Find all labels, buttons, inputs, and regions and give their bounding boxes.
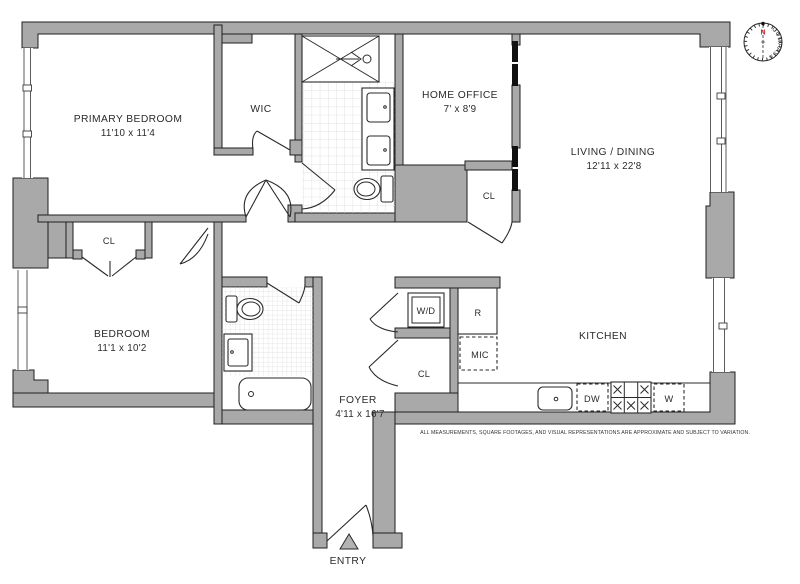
window-bedroom [16,270,29,370]
window-primary-bedroom [22,48,33,178]
floor-plan-page: N COMPASS PRIMARY BEDROOM 11'10 x 11'4 W… [0,0,800,584]
bedroom-dims: 11'1 x 10'2 [97,343,146,354]
living-closet-label: CL [483,191,495,201]
dishwasher-label: DW [584,394,600,404]
living-dining-dims: 12'11 x 22'8 [586,161,641,172]
home-office-label: HOME OFFICE [422,90,498,101]
window-kitchen [712,278,730,372]
kitchen-sink-icon [538,387,572,410]
microwave-label: MIC [471,350,489,360]
refrigerator-label: R [475,308,482,318]
primary-closet-label: CL [103,236,115,246]
kitchen-counter [458,370,710,383]
shower-icon [302,36,379,82]
vanity-double-sink-icon [362,88,394,170]
floor-plan: N COMPASS PRIMARY BEDROOM 11'10 x 11'4 W… [0,0,800,584]
primary-bedroom-label: PRIMARY BEDROOM [74,114,183,125]
toilet-icon [354,176,393,202]
washer-dryer-label: W/D [417,306,436,316]
compass-icon: N COMPASS [744,22,782,61]
primary-bedroom-dims: 11'10 x 11'4 [101,128,156,139]
compass-north-label: N [760,30,765,37]
washer-label: W [665,394,674,404]
foyer-closet-label: CL [418,369,430,379]
home-office-dims: 7' x 8'9 [444,104,477,115]
bedroom-label: BEDROOM [94,329,150,340]
bathtub-icon [239,378,311,410]
entry-label: ENTRY [330,556,367,567]
disclaimer-text: ALL MEASUREMENTS, SQUARE FOOTAGES, AND V… [420,430,750,436]
entry-arrow-icon [340,534,358,549]
stove-icon [611,382,651,413]
wic-label: WIC [250,104,271,115]
toilet2-icon [226,296,263,322]
kitchen-label: KITCHEN [579,331,627,342]
sink2-icon [224,334,252,371]
foyer-label: FOYER [339,395,376,406]
living-dining-label: LIVING / DINING [571,147,655,158]
foyer-dims: 4'11 x 16'7 [335,409,384,420]
window-living [709,47,728,192]
